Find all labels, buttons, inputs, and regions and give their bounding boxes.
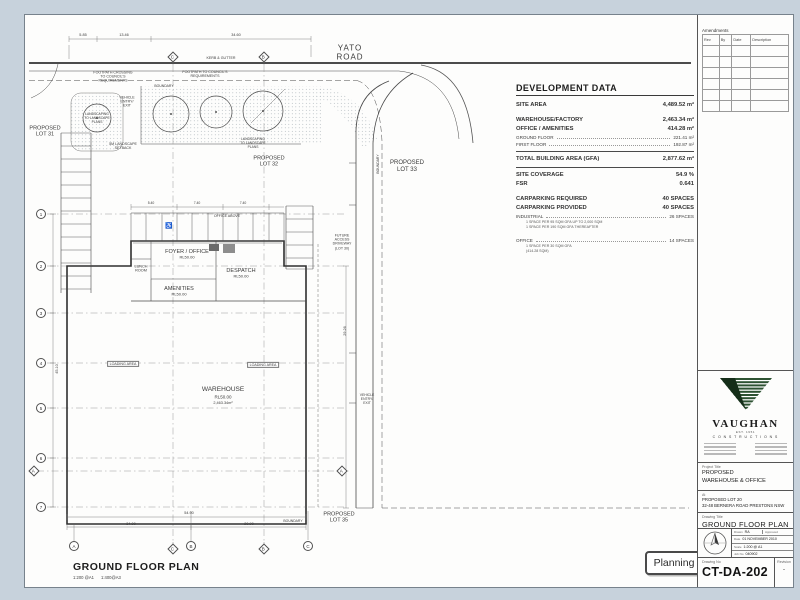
amendments-section: Amendments RevByDateDescription xyxy=(702,28,789,112)
project-line1: PROPOSED xyxy=(702,469,789,477)
dd-s: FIRST FLOOR192.87 m² xyxy=(516,141,694,148)
amend-col-date: Date xyxy=(732,35,751,46)
dd-s: OFFICE14 SPACES xyxy=(516,237,694,244)
drawn-value: RA xyxy=(745,530,750,534)
job-label: Job No xyxy=(734,552,744,556)
plan-title-block: GROUND FLOOR PLAN 1:200 @A1 1:400@A3 xyxy=(73,561,199,580)
address-column-left xyxy=(704,443,736,455)
revision-label: Revision xyxy=(777,560,791,564)
field-row-scale: Scale1:200 @ A1 xyxy=(732,544,793,551)
logo-subtitle: C O N S T R U C T I O N S xyxy=(698,435,793,439)
planning-stamp-label: Planning xyxy=(654,557,695,569)
dd-r: CARPARKING REQUIRED40 SPACES xyxy=(516,195,694,204)
approved-label: Approved xyxy=(765,530,778,534)
drawing-no-value: CT-DA-202 xyxy=(702,565,770,579)
drawing-sheet: YATO ROADPROPOSED LOT 31PROPOSED LOT 32P… xyxy=(24,14,794,588)
logo-address-block xyxy=(698,443,793,455)
drawing-no-label: Drawing No xyxy=(702,560,770,564)
dd-r: SITE COVERAGE54.9 % xyxy=(516,171,694,180)
dd-r: FSR0.641 xyxy=(516,180,694,189)
dd-r: CARPARKING PROVIDED40 SPACES xyxy=(516,204,694,213)
drawing-title-label: Drawing Title xyxy=(702,515,789,519)
company-logo-section: VAUGHAN EST. 1951 C O N S T R U C T I O … xyxy=(698,370,793,462)
development-data-panel: DEVELOPMENT DATA SITE AREA4,489.52 m²WAR… xyxy=(516,83,694,254)
at-line2: 32-48 BERNERA ROAD PRESTONS NSW xyxy=(702,503,789,509)
project-title-section: Project Title PROPOSED WAREHOUSE & OFFIC… xyxy=(698,462,793,490)
dd-r: TOTAL BUILDING AREA (GFA)2,877.62 m² xyxy=(516,155,694,164)
dd-n: (414.28 SQM) xyxy=(516,249,694,254)
scale-value: 1:200 @ A1 xyxy=(744,545,763,549)
amend-empty-row xyxy=(703,101,789,112)
dd-r: OFFICE / AMENITIES414.28 m² xyxy=(516,125,694,134)
dd-rule xyxy=(516,167,694,168)
logo-est: EST. 1951 xyxy=(698,430,793,434)
drawing-number-section: Drawing No CT-DA-202 Revision - xyxy=(698,557,793,587)
dd-r: WAREHOUSE/FACTORY2,463.34 m² xyxy=(516,116,694,125)
north-and-fields-section: DrawnRA Approved Date01 NOVEMBER 2010 Sc… xyxy=(698,528,793,557)
development-data-title: DEVELOPMENT DATA xyxy=(516,83,694,96)
project-line2: WAREHOUSE & OFFICE xyxy=(702,477,789,485)
amend-col-rev: Rev xyxy=(703,35,720,46)
drawing-title-section: Drawing Title GROUND FLOOR PLAN xyxy=(698,512,793,528)
amend-col-by: By xyxy=(719,35,732,46)
scale-label: Scale xyxy=(734,545,742,549)
north-arrow-box xyxy=(698,529,732,557)
revision-value: - xyxy=(777,567,791,573)
north-arrow-icon xyxy=(702,530,728,556)
amendments-title: Amendments xyxy=(702,28,789,33)
drawing-number-cell: Drawing No CT-DA-202 xyxy=(698,558,774,587)
dd-s: GROUND FLOOR221.41 m² xyxy=(516,134,694,141)
date-value: 01 NOVEMBER 2010 xyxy=(742,537,777,541)
amend-empty-row xyxy=(703,90,789,101)
dd-s: INDUSTRIAL26 SPACES xyxy=(516,213,694,220)
revision-cell: Revision - xyxy=(774,558,793,587)
vaughan-logo-icon xyxy=(719,377,773,411)
development-data-rows: SITE AREA4,489.52 m²WAREHOUSE/FACTORY2,4… xyxy=(516,101,694,254)
drawn-label: Drawn xyxy=(734,530,743,534)
drawing-fields: DrawnRA Approved Date01 NOVEMBER 2010 Sc… xyxy=(732,529,793,557)
address-column-right xyxy=(755,443,787,455)
amendments-table: RevByDateDescription xyxy=(702,34,789,112)
amend-empty-row xyxy=(703,57,789,68)
planning-stamp: Planning xyxy=(645,551,703,575)
field-row-date: Date01 NOVEMBER 2010 xyxy=(732,536,793,543)
field-row-drawn: DrawnRA Approved xyxy=(732,529,793,536)
amend-empty-row xyxy=(703,68,789,79)
plan-scale: 1:200 @A1 1:400@A3 xyxy=(73,575,199,580)
job-value: 040902 xyxy=(746,552,758,556)
dd-rule xyxy=(516,151,694,152)
amend-col-description: Description xyxy=(751,35,789,46)
amend-empty-row xyxy=(703,46,789,57)
date-label: Date xyxy=(734,537,740,541)
project-address-section: At PROPOSED LOT 20 32-48 BERNERA ROAD PR… xyxy=(698,490,793,512)
amend-empty-row xyxy=(703,79,789,90)
plan-title: GROUND FLOOR PLAN xyxy=(73,561,199,573)
logo-company-name: VAUGHAN xyxy=(698,418,793,430)
dd-r: SITE AREA4,489.52 m² xyxy=(516,101,694,110)
title-block: Amendments RevByDateDescription xyxy=(697,15,793,587)
